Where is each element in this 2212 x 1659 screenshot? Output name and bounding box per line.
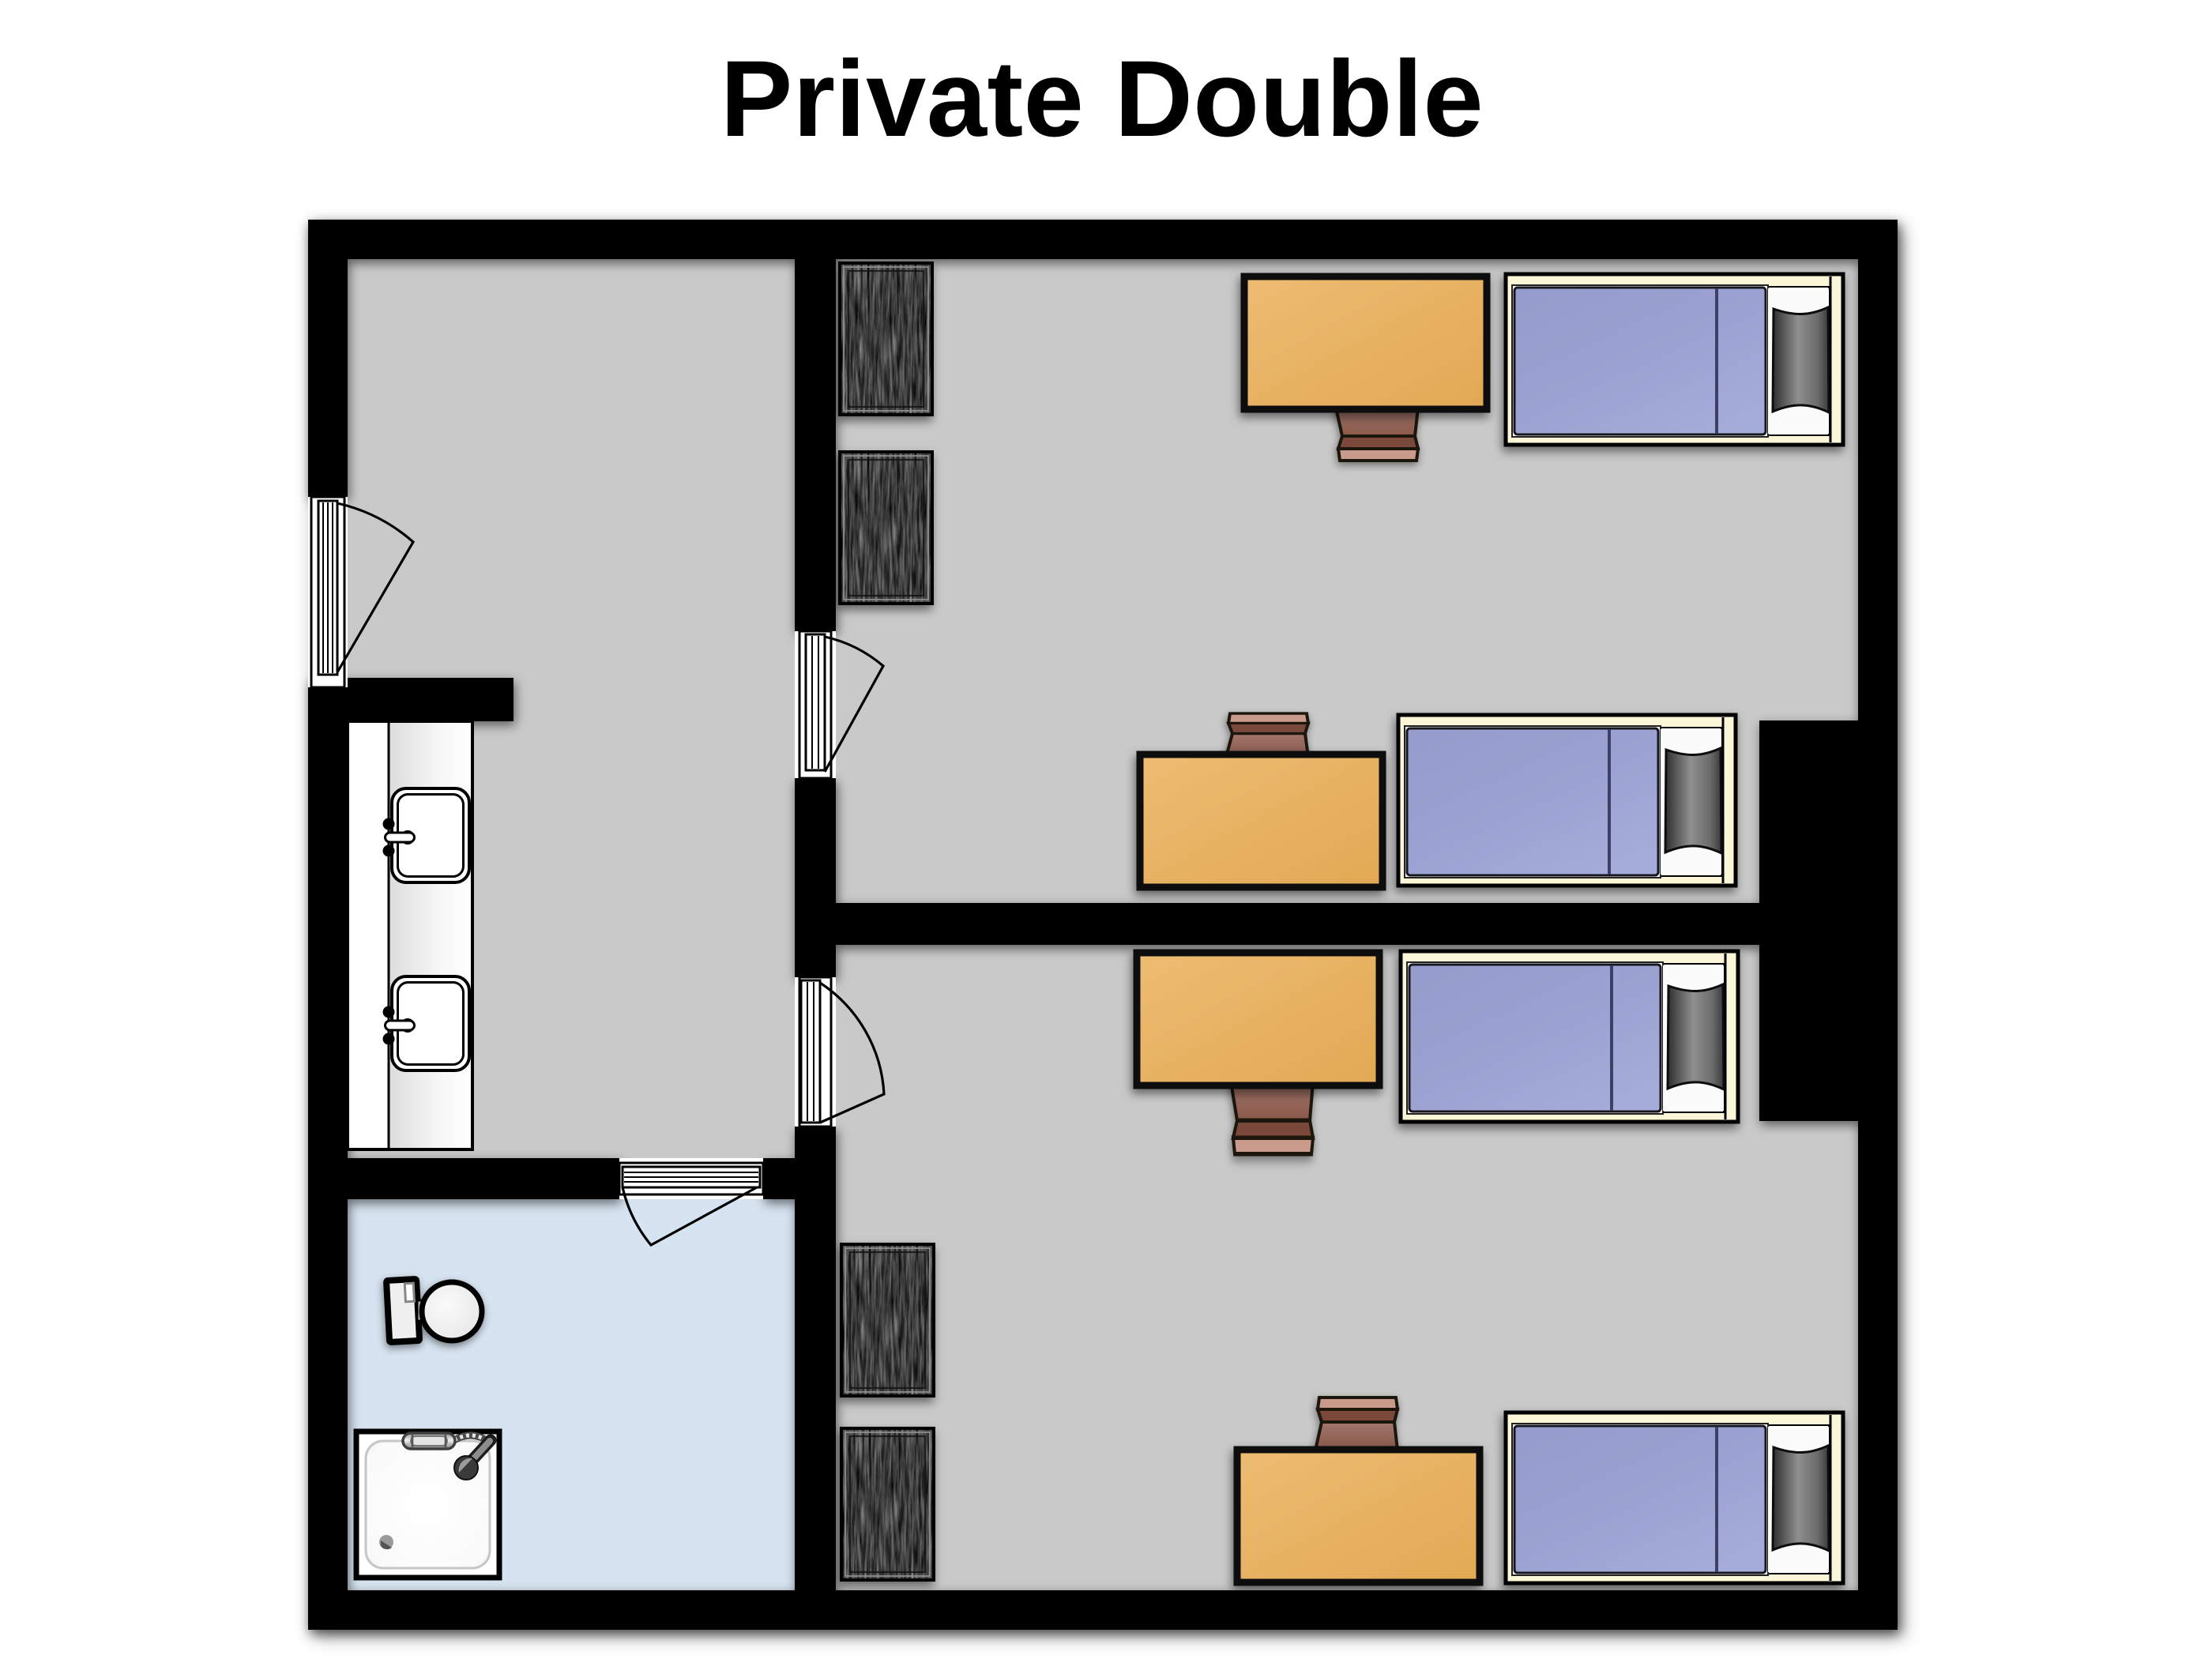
svg-text:Private Double: Private Double [720,39,1484,160]
